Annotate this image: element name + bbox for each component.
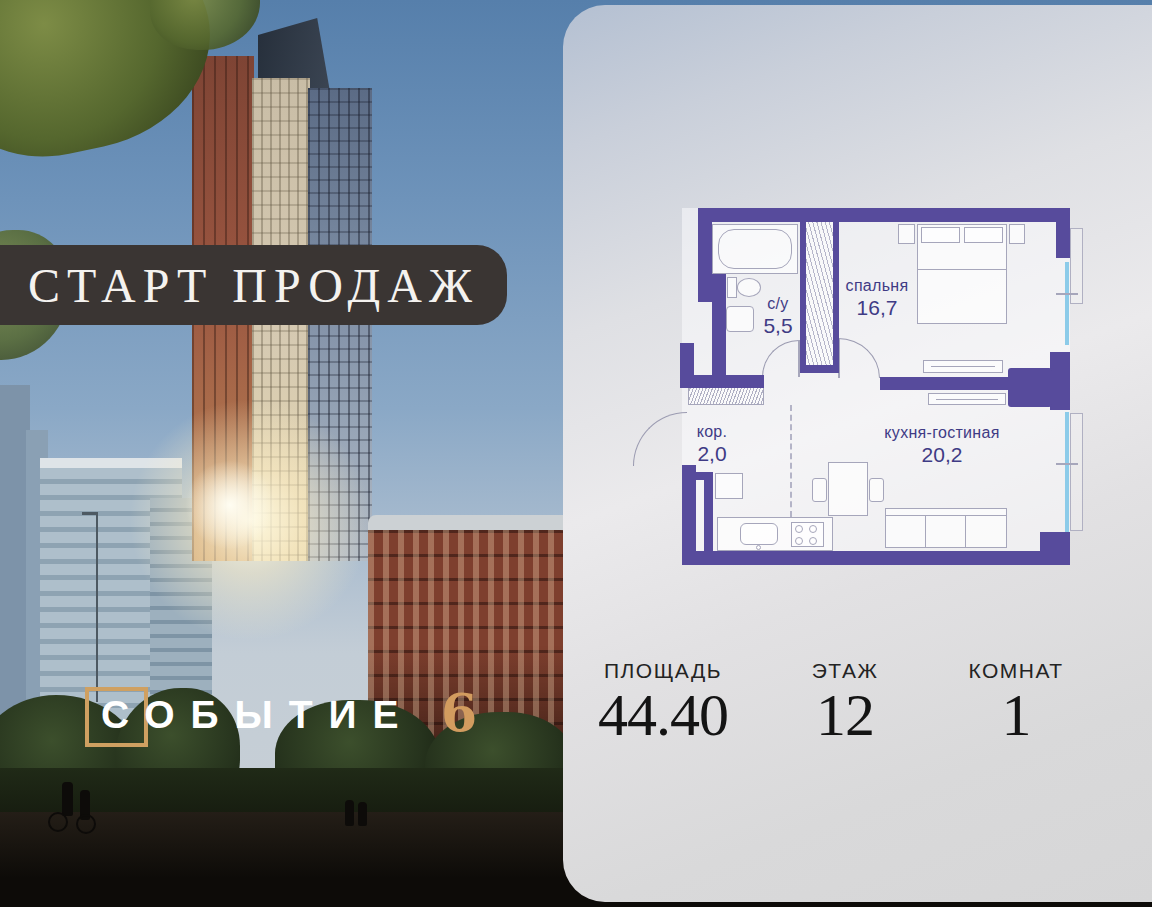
closet-hatch [806,222,833,365]
sofa-back-line [885,515,1007,516]
stat-value: 1 [968,685,1063,746]
room-name: кор. [697,423,728,441]
floor-plan: с/у 5,5 спальня 16,7 кор. 2,0 кухня-гост… [628,195,1090,573]
wall [712,274,726,388]
wall [682,465,696,565]
chair [812,478,827,502]
sun-glare-core [185,460,275,550]
wall [680,343,694,388]
window-sill [1056,293,1078,295]
burner [795,525,803,533]
toilet-tank [727,277,737,298]
window [1065,262,1069,345]
room-label-bedroom: спальня 16,7 [846,277,909,320]
nightstand [898,224,915,244]
stat-value: 12 [812,685,879,746]
wall [800,222,806,372]
room-name: кухня-гостиная [884,424,999,442]
stat-floor: ЭТАЖ 12 [812,659,879,746]
logo-text: СОБЫТИЕ [101,693,415,737]
street-lamp [96,512,98,702]
wall [833,222,839,372]
wall [880,377,1010,390]
burner [795,537,803,545]
stat-label: ПЛОЩАДЬ [598,659,728,683]
burner [809,525,817,533]
dining-table [828,462,868,516]
stat-value: 44.40 [598,685,728,746]
sales-start-banner: СТАРТ ПРОДАЖ [0,245,507,325]
toilet-bowl [737,278,761,297]
room-area: 20,2 [884,443,999,467]
wall [682,551,1070,565]
pillow [964,227,1003,243]
tv-bench-line [936,399,998,400]
entrance-door-arc [633,412,687,466]
wall [698,208,1070,222]
wall [1056,208,1070,258]
sofa-division [925,515,926,548]
pillow [921,227,960,243]
blanket-line [917,269,1007,270]
pedestrian [358,802,367,826]
nightstand [1009,224,1025,244]
zone-divider [790,405,792,517]
banner-label: СТАРТ ПРОДАЖ [28,258,479,313]
wall [800,365,839,373]
room-name: спальня [846,277,909,295]
stat-area: ПЛОЩАДЬ 44.40 [598,659,728,746]
bathtub-inner [718,229,792,269]
wall [1050,352,1070,410]
chair [869,478,884,502]
stat-label: ЭТАЖ [812,659,879,683]
room-label-bathroom: с/у 5,5 [763,295,792,338]
room-area: 16,7 [846,296,909,320]
wall [698,208,712,276]
sofa [885,508,1007,548]
room-label-kitchen-living: кухня-гостиная 20,2 [884,424,999,467]
balcony-outline [1070,413,1083,531]
burner [809,537,817,545]
project-logo: СОБЫТИЕ 6 [85,686,495,750]
kitchen-cabinet [715,473,743,499]
room-area: 2,0 [697,442,728,466]
stat-rooms: КОМНАТ 1 [968,659,1063,746]
corner-sofa [1008,368,1052,407]
logo-number: 6 [441,683,477,743]
bathroom-sink [726,306,754,332]
faucet [756,545,761,550]
window-sill [1056,463,1078,465]
room-area: 5,5 [763,314,792,338]
pedestrian [62,782,73,816]
dresser-line [931,366,995,367]
window [1065,412,1069,532]
bicycle-wheel [76,814,96,834]
sofa-division [965,515,966,548]
stat-label: КОМНАТ [968,659,1063,683]
room-name: с/у [763,295,792,313]
room-label-corridor: кор. 2,0 [697,423,728,466]
pedestrian [345,800,354,826]
bicycle-wheel [48,812,68,832]
wall [704,472,713,551]
kitchen-sink [740,523,778,545]
